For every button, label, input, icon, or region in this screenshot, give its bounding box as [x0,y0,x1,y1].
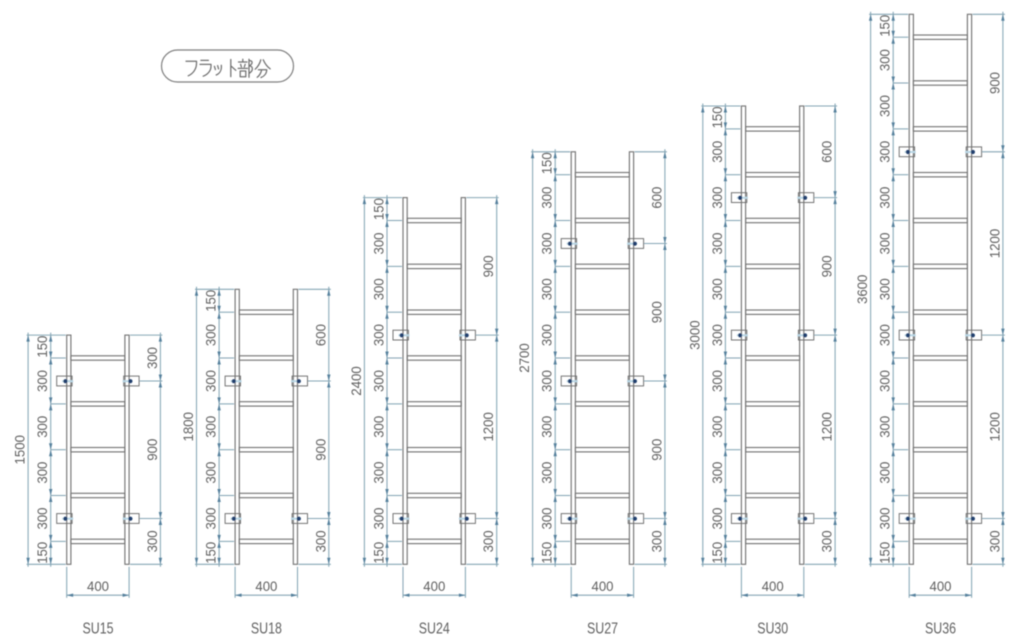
svg-text:SU30: SU30 [757,620,788,637]
svg-text:150: 150 [709,542,725,564]
svg-text:300: 300 [34,370,50,392]
svg-text:400: 400 [930,578,952,594]
svg-text:SU27: SU27 [587,620,618,637]
svg-text:900: 900 [480,255,496,277]
svg-text:300: 300 [312,530,328,552]
svg-text:300: 300 [986,530,1002,552]
svg-text:300: 300 [539,507,555,529]
svg-text:300: 300 [34,507,50,529]
svg-text:300: 300 [709,370,725,392]
svg-text:3600: 3600 [854,274,870,304]
svg-text:600: 600 [648,186,664,208]
svg-text:300: 300 [877,507,893,529]
svg-text:300: 300 [877,95,893,117]
svg-text:300: 300 [539,232,555,254]
svg-text:900: 900 [648,301,664,323]
svg-text:300: 300 [877,370,893,392]
svg-text:300: 300 [877,232,893,254]
svg-text:300: 300 [480,530,496,552]
svg-text:300: 300 [709,232,725,254]
svg-text:300: 300 [877,278,893,300]
svg-text:1200: 1200 [819,412,835,442]
svg-text:300: 300 [709,186,725,208]
svg-text:1200: 1200 [986,412,1002,442]
svg-text:1200: 1200 [986,229,1002,259]
svg-text:150: 150 [34,542,50,564]
svg-text:300: 300 [877,416,893,438]
svg-text:300: 300 [203,461,219,483]
svg-text:600: 600 [819,141,835,163]
svg-text:150: 150 [203,542,219,564]
svg-text:1200: 1200 [480,412,496,442]
svg-text:400: 400 [762,578,784,594]
svg-text:900: 900 [819,255,835,277]
svg-text:300: 300 [709,416,725,438]
svg-text:300: 300 [539,278,555,300]
svg-text:150: 150 [371,198,387,220]
svg-text:1800: 1800 [180,412,196,442]
svg-text:150: 150 [877,15,893,37]
svg-text:300: 300 [371,461,387,483]
svg-text:300: 300 [203,324,219,346]
svg-text:150: 150 [34,335,50,357]
svg-text:300: 300 [709,507,725,529]
svg-text:300: 300 [371,416,387,438]
svg-text:300: 300 [203,370,219,392]
svg-text:300: 300 [709,461,725,483]
svg-text:300: 300 [539,186,555,208]
svg-text:400: 400 [423,578,445,594]
svg-text:150: 150 [203,290,219,312]
svg-text:SU15: SU15 [83,620,114,637]
svg-text:150: 150 [709,106,725,128]
svg-text:300: 300 [539,324,555,346]
svg-text:150: 150 [539,152,555,174]
svg-text:300: 300 [371,324,387,346]
svg-text:300: 300 [709,141,725,163]
svg-text:SU18: SU18 [251,620,282,637]
svg-text:2400: 2400 [348,366,364,396]
svg-text:300: 300 [877,186,893,208]
svg-text:SU36: SU36 [925,620,956,637]
svg-text:300: 300 [709,324,725,346]
svg-text:2700: 2700 [516,343,532,373]
svg-text:150: 150 [371,542,387,564]
svg-text:300: 300 [539,416,555,438]
svg-text:300: 300 [877,141,893,163]
svg-text:300: 300 [371,278,387,300]
svg-text:400: 400 [255,578,277,594]
svg-text:400: 400 [87,578,109,594]
svg-text:300: 300 [371,507,387,529]
svg-text:300: 300 [539,370,555,392]
svg-text:900: 900 [312,438,328,460]
svg-text:300: 300 [371,232,387,254]
svg-text:300: 300 [877,49,893,71]
svg-text:600: 600 [312,324,328,346]
svg-text:300: 300 [877,461,893,483]
svg-text:900: 900 [986,72,1002,94]
svg-text:150: 150 [877,542,893,564]
svg-text:300: 300 [371,370,387,392]
svg-text:300: 300 [144,347,160,369]
svg-text:300: 300 [34,461,50,483]
svg-text:900: 900 [648,438,664,460]
svg-text:1500: 1500 [12,435,28,465]
svg-text:900: 900 [144,438,160,460]
svg-text:300: 300 [819,530,835,552]
svg-text:SU24: SU24 [419,620,450,637]
svg-text:300: 300 [34,416,50,438]
svg-text:400: 400 [592,578,614,594]
svg-text:300: 300 [709,278,725,300]
svg-text:3000: 3000 [686,320,702,350]
svg-text:300: 300 [144,530,160,552]
svg-text:300: 300 [648,530,664,552]
svg-text:300: 300 [203,507,219,529]
svg-text:300: 300 [203,416,219,438]
svg-text:150: 150 [539,542,555,564]
svg-text:300: 300 [539,461,555,483]
svg-text:300: 300 [877,324,893,346]
